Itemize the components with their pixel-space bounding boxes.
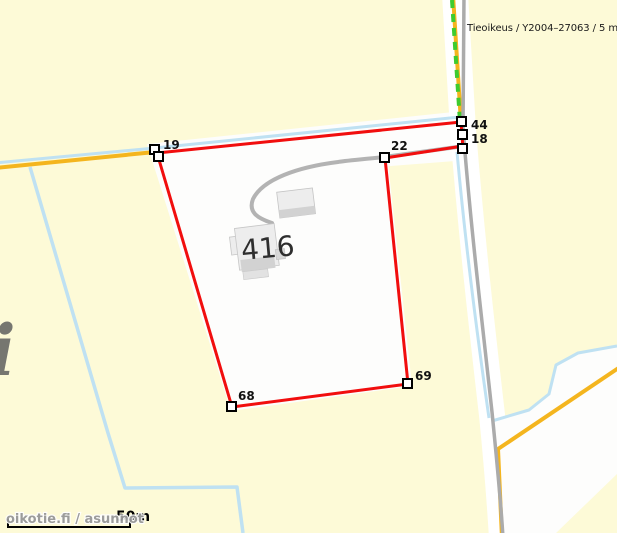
- vertex-marker-69: [403, 379, 412, 388]
- vertex-marker-18: [458, 130, 467, 139]
- parcel-number-label: 416: [240, 229, 296, 267]
- site-watermark: oikotie.fi / asunnot: [6, 512, 144, 527]
- vertex-marker-mid: [458, 144, 467, 153]
- vertex-marker-68: [227, 402, 236, 411]
- map-view[interactable]: 19 22 44 18 68 69 416 Tieoikeus / Y2004–…: [0, 0, 617, 533]
- map-canvas[interactable]: 19 22 44 18 68 69 416 Tieoikeus / Y2004–…: [0, 0, 617, 533]
- vertex-label-68: 68: [238, 389, 255, 403]
- vertex-label-44: 44: [471, 118, 488, 132]
- vertex-label-18: 18: [471, 132, 488, 146]
- building-outbuilding: [277, 188, 316, 218]
- vertex-label-22: 22: [391, 139, 408, 153]
- vertex-label-19: 19: [163, 138, 180, 152]
- vertex-label-69: 69: [415, 369, 432, 383]
- vertex-marker-44: [457, 117, 466, 126]
- vertex-marker-22: [380, 153, 389, 162]
- vertex-marker-19b: [154, 152, 163, 161]
- tooltip-text: Tieoikeus / Y2004–27063 / 5 m: [466, 23, 617, 34]
- watermark-big-letter: i: [0, 309, 16, 392]
